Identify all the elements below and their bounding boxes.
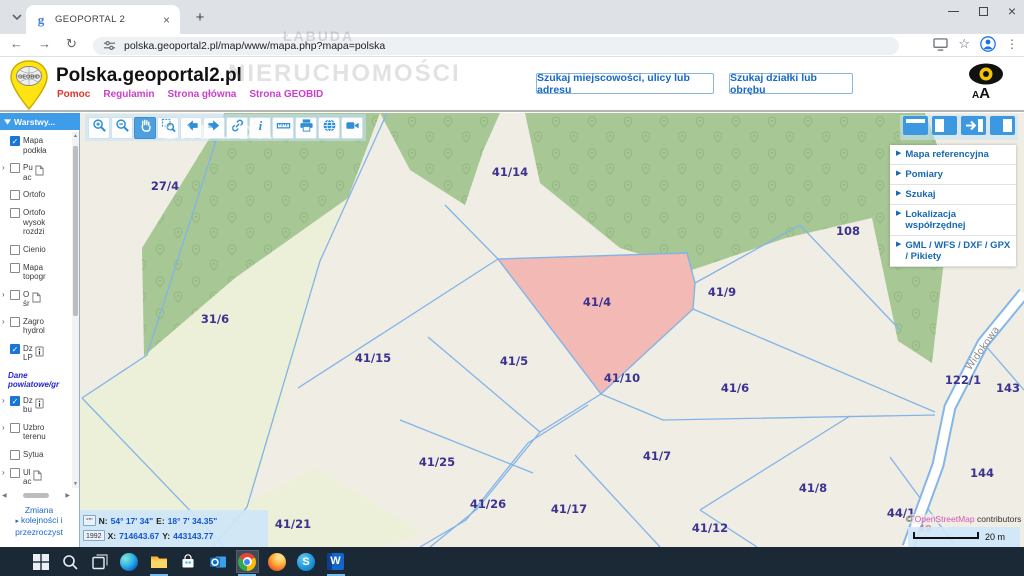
file-icon[interactable] (32, 290, 41, 308)
layer-item: Mapatopogr (0, 259, 72, 286)
layer-label[interactable]: Uzbroterenu (23, 423, 46, 442)
browser-tab[interactable]: g GEOPORTAL 2 × (26, 5, 180, 34)
layer-label[interactable]: Sytua (23, 450, 43, 460)
globe-button[interactable] (318, 117, 340, 139)
map-side-menu: ▶Mapa referencyjna▶Pomiary▶Szukaj▶Lokali… (890, 145, 1016, 267)
layer-label[interactable]: Mapatopogr (23, 263, 46, 282)
layer-checkbox[interactable] (10, 450, 20, 460)
panel-full-icon[interactable] (903, 116, 928, 140)
measure-icon (276, 118, 291, 138)
file-icon[interactable] (33, 468, 42, 486)
search-place-button[interactable]: Szukaj miejscowości, ulicy lub adresu (536, 73, 714, 94)
layer-label[interactable]: Ortofo (23, 190, 45, 200)
parcel-label: 41/15 (355, 351, 391, 365)
layer-item: Ortofowysokrozdzi (0, 204, 72, 241)
arrow-left-button[interactable] (180, 117, 202, 139)
parcel-label: 41/26 (470, 497, 506, 511)
open-app-indicator (238, 574, 256, 576)
layer-item: ✓ DzLP (0, 340, 72, 367)
tab-search-chevron-icon[interactable] (8, 9, 26, 25)
info-icon[interactable] (35, 344, 44, 362)
scale-line (913, 532, 979, 539)
scale-label: 20 m (985, 532, 1005, 542)
parcel-label: 143 (996, 381, 1020, 395)
pan-button[interactable] (134, 117, 156, 139)
arrow-left-icon (184, 118, 199, 138)
taskbar-task-view-icon[interactable] (89, 551, 110, 572)
parcel-label: 27/4 (151, 179, 179, 193)
taskbar-word-icon[interactable]: W (325, 551, 346, 572)
sidebar-hscrollbar[interactable]: ◀ ▶ (2, 491, 70, 500)
zoom-extent-button[interactable] (157, 117, 179, 139)
layer-item: Ortofo (0, 186, 72, 204)
print-icon (299, 118, 314, 138)
layer-checkbox[interactable] (10, 263, 20, 273)
expand-icon[interactable]: › (2, 290, 9, 299)
map-canvas[interactable]: Widokowa27/441/1410831/641/941/441/1541/… (80, 113, 1024, 547)
close-button[interactable]: × (1008, 6, 1016, 16)
zoom-in-icon (92, 118, 107, 138)
tab-title: GEOPORTAL 2 (55, 14, 161, 25)
expand-icon[interactable]: › (2, 396, 9, 405)
layer-label[interactable]: Mapapodkła (23, 136, 47, 155)
expand-icon[interactable]: › (2, 163, 9, 172)
layer-item: › Puac (0, 159, 72, 186)
screen: g GEOPORTAL 2 × + × ← → ↻ polska.geoport… (0, 0, 1024, 576)
arrow-right-button[interactable] (203, 117, 225, 139)
accessibility-eye-icon[interactable] (966, 61, 1006, 87)
layer-item: › Uzbroterenu (0, 419, 72, 446)
taskbar-store-icon[interactable] (178, 551, 199, 572)
tab-close-icon[interactable]: × (161, 13, 172, 27)
layer-item: ✓ Mapapodkła (0, 132, 72, 159)
scrollbar-thumb[interactable] (73, 146, 78, 316)
layer-checkbox[interactable] (10, 290, 20, 300)
parcel-label: 41/6 (721, 381, 749, 395)
side-menu-item[interactable]: ▶Lokalizacja współrzędnej (890, 205, 1016, 236)
side-menu-item[interactable]: ▶Mapa referencyjna (890, 145, 1016, 165)
layer-checkbox[interactable] (10, 468, 20, 478)
layer-label[interactable]: Zagrohydrol (23, 317, 45, 336)
degrees-mode-button[interactable]: °'" (83, 515, 96, 526)
layer-checkbox[interactable] (10, 245, 20, 255)
lat-label: N: (99, 516, 108, 526)
expand-icon[interactable]: › (2, 317, 9, 326)
parcel-label: 41/10 (604, 371, 640, 385)
info-icon: i (253, 118, 268, 138)
y-label: Y: (162, 531, 170, 541)
layer-group-header: Danepowiatowe/gr (0, 367, 72, 392)
menu-arrow-icon: ▶ (896, 189, 901, 199)
window-controls: × (948, 6, 1016, 16)
parcel-label: 41/21 (275, 517, 311, 531)
reload-icon[interactable]: ↻ (66, 36, 77, 52)
side-menu-item[interactable]: ▶GML / WFS / DXF / GPX / Pikiety (890, 236, 1016, 267)
map-toolbar: i (85, 114, 366, 141)
measure-button[interactable] (272, 117, 294, 139)
layer-item: › Ośr (0, 286, 72, 313)
site-header: GEOBID Polska.geoportal2.pl PomocRegulam… (0, 57, 1024, 112)
lon-value: 18° 7' 34.35" (168, 516, 218, 526)
header-link[interactable]: Pomoc (57, 89, 90, 100)
parcel-label: 108 (836, 224, 860, 238)
hscrollbar-thumb[interactable] (23, 493, 49, 498)
layer-checkbox[interactable] (10, 208, 20, 218)
layer-item: › Zagrohydrol (0, 313, 72, 340)
panel-right-icon[interactable] (990, 116, 1015, 140)
camera-icon (345, 118, 360, 138)
site-links: PomocRegulaminStrona głównaStrona GEOBID (57, 89, 323, 100)
layers-list: ✓ Mapapodkła › Puac Ortofo Ortofowysokro… (0, 132, 72, 491)
layer-label[interactable]: Ortofowysokrozdzi (23, 208, 45, 237)
parcel-label: 41/7 (643, 449, 671, 463)
addressbar-actions: ☆ ⋮ (933, 36, 1018, 52)
layer-label[interactable]: Ulac (23, 468, 31, 487)
browser-menu-icon[interactable]: ⋮ (1006, 37, 1018, 51)
svg-text:i: i (258, 118, 262, 133)
osm-link[interactable]: OpenStreetMap (915, 514, 975, 524)
taskbar-skype-icon[interactable]: S (296, 551, 317, 572)
layer-checkbox[interactable]: ✓ (10, 136, 20, 146)
new-tab-button[interactable]: + (190, 8, 210, 28)
taskbar-search-icon[interactable] (60, 551, 81, 572)
open-app-indicator (327, 574, 345, 576)
tab-favicon: g (34, 13, 48, 27)
layer-item: › Ulac (0, 464, 72, 491)
layer-checkbox[interactable] (10, 190, 20, 200)
layer-checkbox[interactable] (10, 317, 20, 327)
zoom-out-icon (115, 118, 130, 138)
parcel-label: 41/9 (708, 285, 736, 299)
url-text: polska.geoportal2.pl/map/www/mapa.php?ma… (124, 40, 385, 52)
url-bar[interactable]: polska.geoportal2.pl/map/www/mapa.php?ma… (93, 37, 899, 55)
sidebar-scrollbar[interactable]: ▲ ▼ (72, 132, 79, 488)
layer-reorder-link[interactable]: Zmiana▸ kolejności iprzezroczyst (2, 505, 76, 537)
site-title: Polska.geoportal2.pl (56, 65, 242, 87)
svg-text:GEOBID: GEOBID (18, 75, 40, 81)
scale-bar: 20 m (908, 527, 1020, 547)
expand-icon[interactable]: › (2, 423, 9, 432)
panel-toggle-bar (900, 115, 1018, 140)
parcel-label: 41/8 (799, 481, 827, 495)
zoom-in-button[interactable] (88, 117, 110, 139)
site-info-icon[interactable] (103, 39, 116, 52)
panel-collapse-icon[interactable] (961, 116, 986, 140)
header-link[interactable]: Strona GEOBID (249, 89, 323, 100)
geoportal-logo: GEOBID (8, 59, 50, 111)
info-icon[interactable] (35, 396, 44, 414)
arrow-right-icon (207, 118, 222, 138)
header-link[interactable]: Strona główna (167, 89, 236, 100)
windows-taskbar: SW A/C 5 7°C Pochmurnie 15:32 26.03.2025 (0, 547, 1024, 576)
layers-panel-header[interactable]: Warstwy... (0, 113, 80, 130)
info-button[interactable]: i (249, 117, 271, 139)
search-parcel-button[interactable]: Szukaj działki lub obrębu (729, 73, 853, 94)
taskbar-firefox-icon[interactable] (266, 551, 287, 572)
map-viewport[interactable]: Widokowa27/441/1410831/641/941/441/1541/… (80, 113, 1024, 547)
layer-label[interactable]: Dzbu (23, 396, 33, 415)
menu-arrow-icon: ▶ (896, 169, 901, 179)
layer-label[interactable]: DzLP (23, 344, 33, 363)
layer-checkbox[interactable]: ✓ (10, 344, 20, 354)
taskbar-explorer-icon[interactable] (148, 551, 169, 572)
layer-item: Sytua (0, 446, 72, 464)
menu-arrow-icon: ▶ (896, 149, 901, 159)
zoom-extent-icon (161, 118, 176, 138)
panel-left-icon[interactable] (932, 116, 957, 140)
parcel-label: 41/14 (492, 165, 528, 179)
side-menu-item[interactable]: ▶Pomiary (890, 165, 1016, 185)
bookmark-star-icon[interactable]: ☆ (958, 36, 970, 52)
scroll-right-icon[interactable]: ▶ (65, 492, 70, 499)
layer-label[interactable]: Puac (23, 163, 33, 182)
menu-arrow-icon: ▶ (896, 209, 901, 219)
taskbar-edge-icon[interactable] (119, 551, 140, 572)
open-app-indicator (150, 574, 168, 576)
scroll-left-icon[interactable]: ◀ (2, 492, 7, 499)
forward-icon[interactable]: → (38, 36, 51, 51)
parcel-label: 41/12 (692, 521, 728, 535)
globe-icon (322, 118, 337, 138)
file-icon[interactable] (35, 163, 44, 181)
layers-sidebar: Warstwy... ✓ Mapapodkła › Puac Ortofo Or… (0, 113, 80, 547)
link-button[interactable] (226, 117, 248, 139)
header-link[interactable]: Regulamin (103, 89, 154, 100)
scroll-down-icon[interactable]: ▼ (72, 481, 79, 487)
map-attribution: © OpenStreetMap contributors (906, 514, 1021, 524)
expand-icon[interactable]: › (2, 468, 9, 477)
parcel-label: 41/25 (419, 455, 455, 469)
chevron-down-icon (4, 119, 11, 125)
browser-addressbar: ← → ↻ polska.geoportal2.pl/map/www/mapa.… (0, 34, 1024, 57)
lon-label: E: (156, 516, 165, 526)
layer-checkbox[interactable]: ✓ (10, 396, 20, 406)
taskbar-start-icon[interactable] (30, 551, 51, 572)
parcel-label: 144 (970, 466, 994, 480)
back-icon[interactable]: ← (10, 36, 23, 51)
scroll-up-icon[interactable]: ▲ (72, 133, 79, 139)
parcel-label: 41/4 (583, 295, 611, 309)
pan-icon (138, 118, 153, 138)
menu-arrow-icon: ▶ (896, 240, 901, 250)
side-menu-item[interactable]: ▶Szukaj (890, 185, 1016, 205)
layer-item: Cienio (0, 241, 72, 259)
crs-1992-button[interactable]: 1992 (83, 530, 105, 541)
browser-tabbar: g GEOPORTAL 2 × + × (0, 0, 1024, 34)
lat-value: 54° 17' 34" (111, 516, 154, 526)
camera-button[interactable] (341, 117, 363, 139)
minimize-button[interactable] (948, 11, 959, 12)
link-icon (230, 118, 245, 138)
x-label: X: (108, 531, 117, 541)
x-value: 714643.67 (119, 531, 159, 541)
taskbar-outlook-icon[interactable] (207, 551, 228, 572)
layer-checkbox[interactable] (10, 423, 20, 433)
profile-avatar[interactable] (980, 36, 996, 52)
zoom-out-button[interactable] (111, 117, 133, 139)
maximize-button[interactable] (979, 7, 988, 16)
parcel-label: 41/17 (551, 502, 587, 516)
y-value: 443143.77 (173, 531, 213, 541)
coordinates-bar: °'" N: 54° 17' 34" E: 18° 7' 34.35" 1992… (80, 510, 268, 547)
print-button[interactable] (295, 117, 317, 139)
taskbar-chrome-icon[interactable] (237, 551, 258, 572)
parcel-label: 31/6 (201, 312, 229, 326)
font-size-toggle[interactable]: AA (972, 85, 990, 103)
parcel-label: 41/5 (500, 354, 528, 368)
parcel-label: 122/1 (945, 373, 981, 387)
install-icon[interactable] (933, 38, 948, 51)
layer-item: › ✓ Dzbu (0, 392, 72, 419)
layer-checkbox[interactable] (10, 163, 20, 173)
layer-label[interactable]: Cienio (23, 245, 46, 255)
layer-label[interactable]: Ośr (23, 290, 30, 309)
